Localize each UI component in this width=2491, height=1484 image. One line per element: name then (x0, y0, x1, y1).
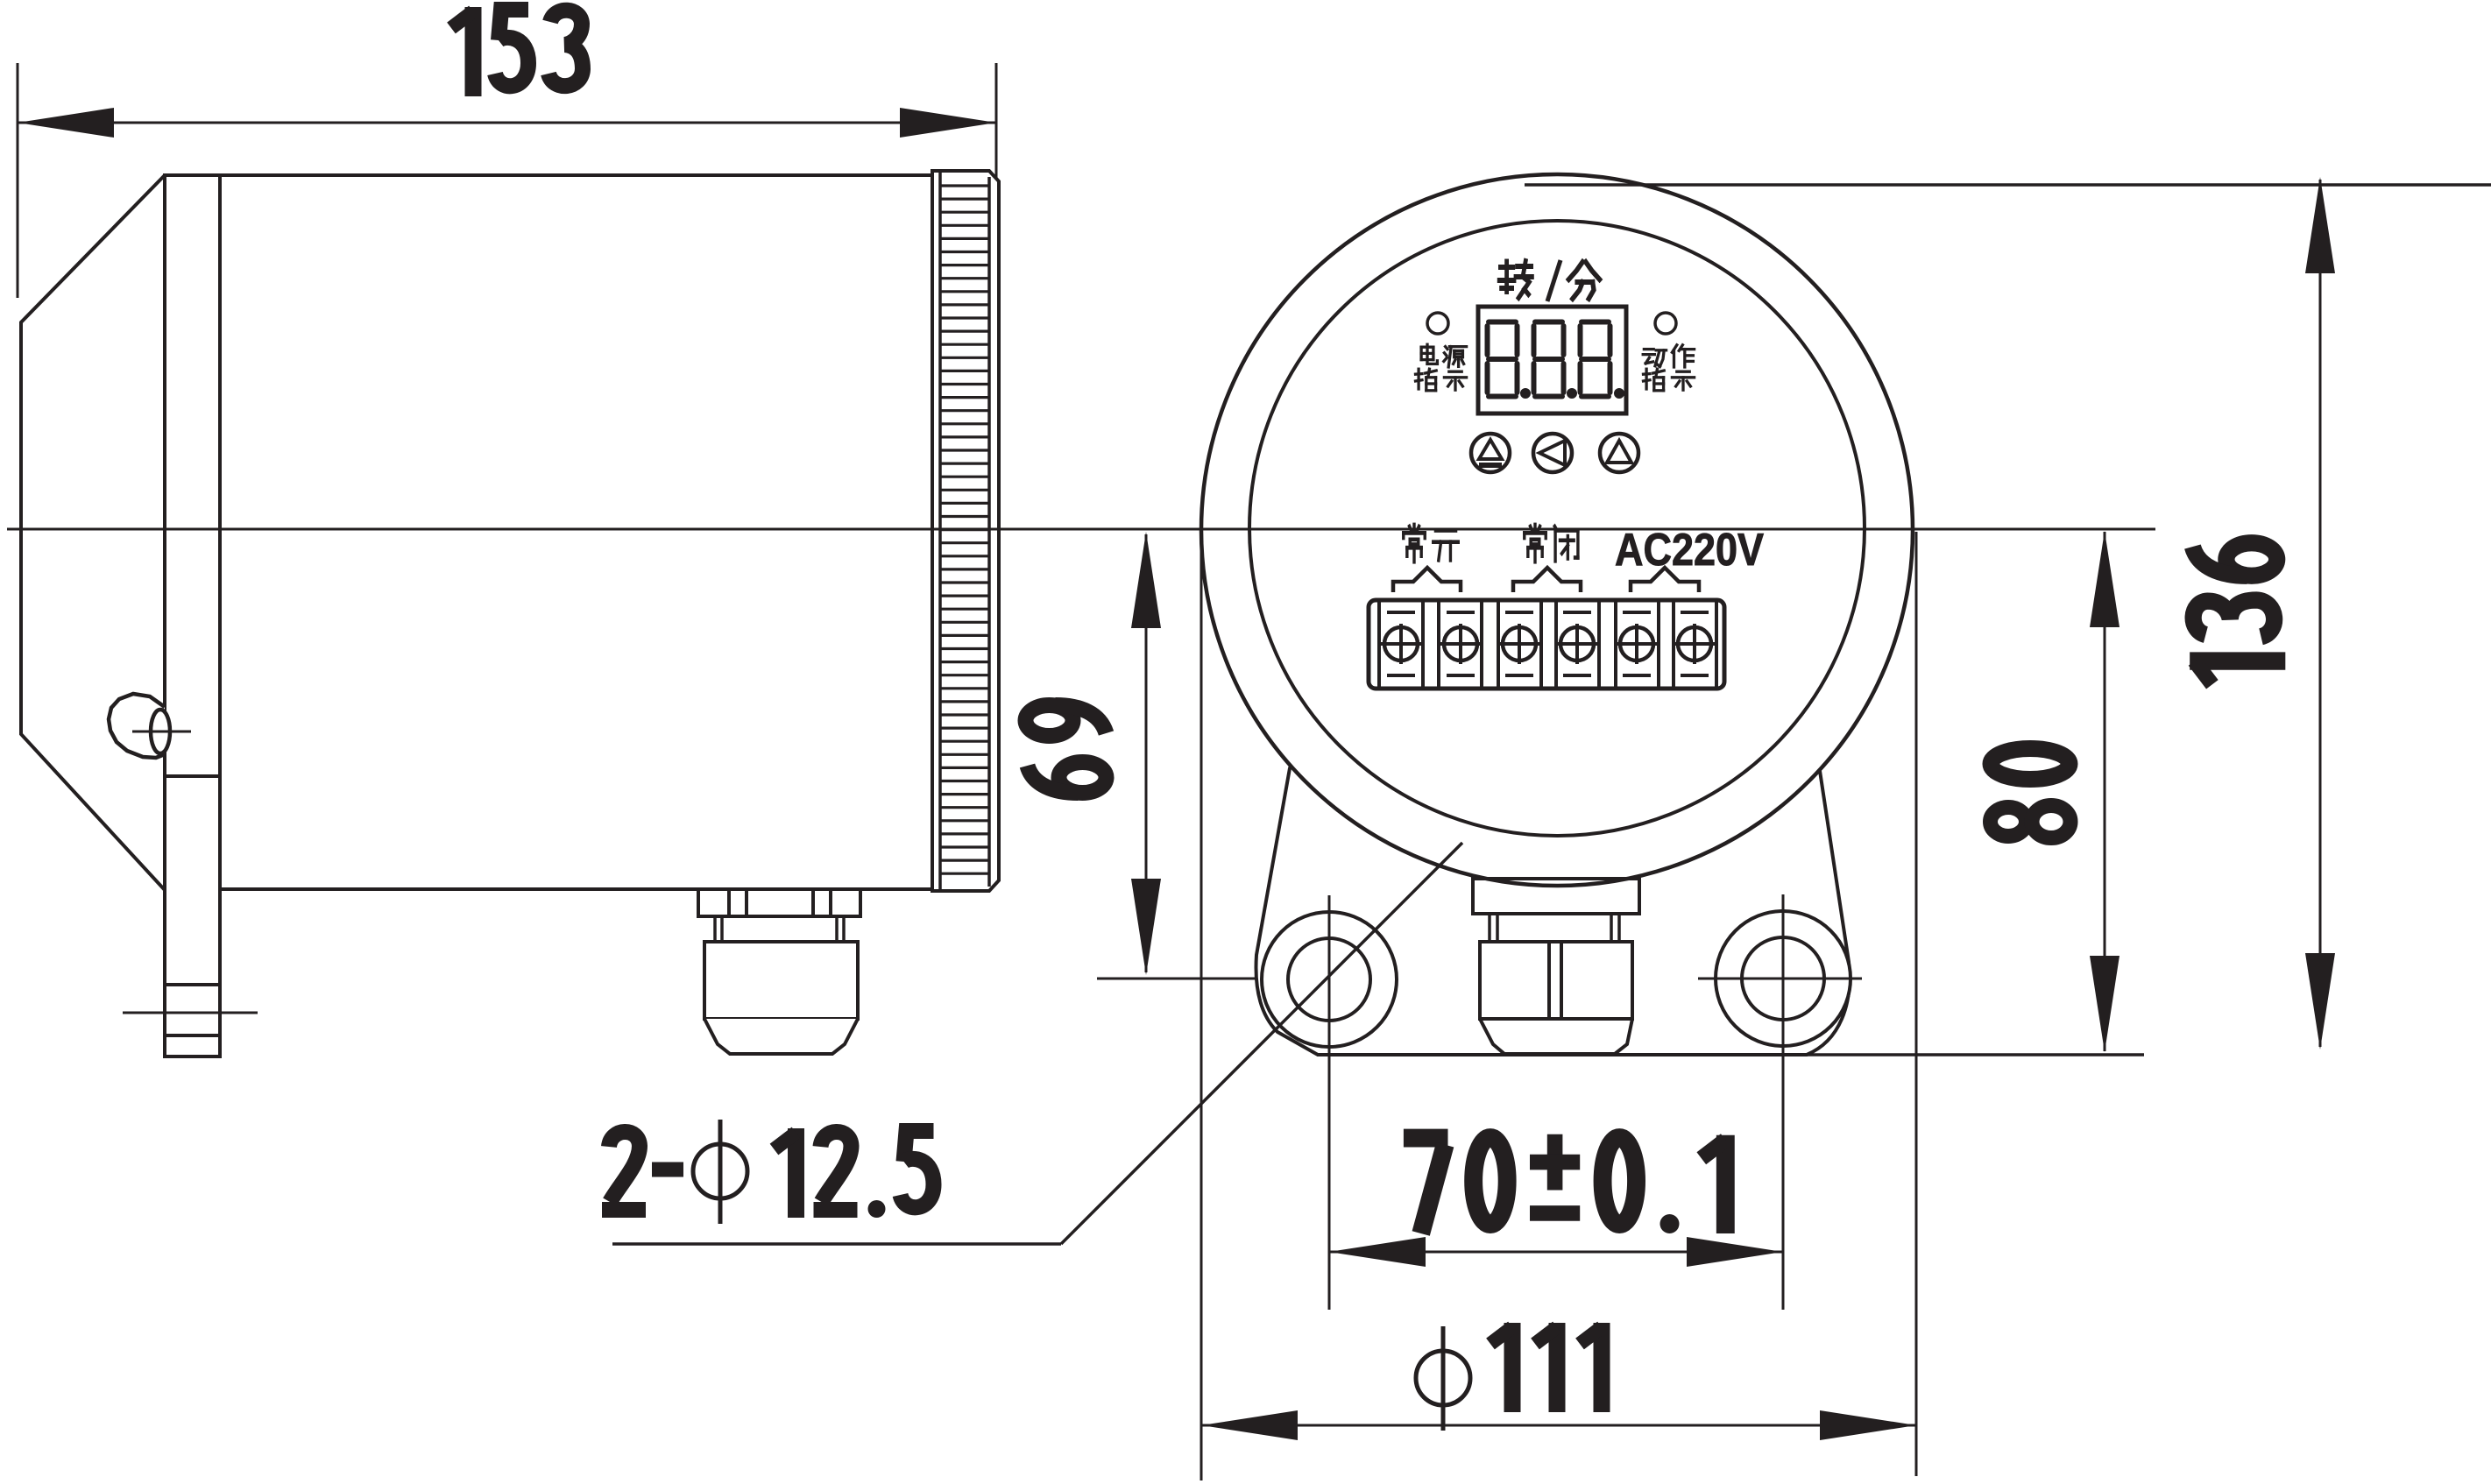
svg-text:AC220V: AC220V (1615, 525, 1764, 576)
